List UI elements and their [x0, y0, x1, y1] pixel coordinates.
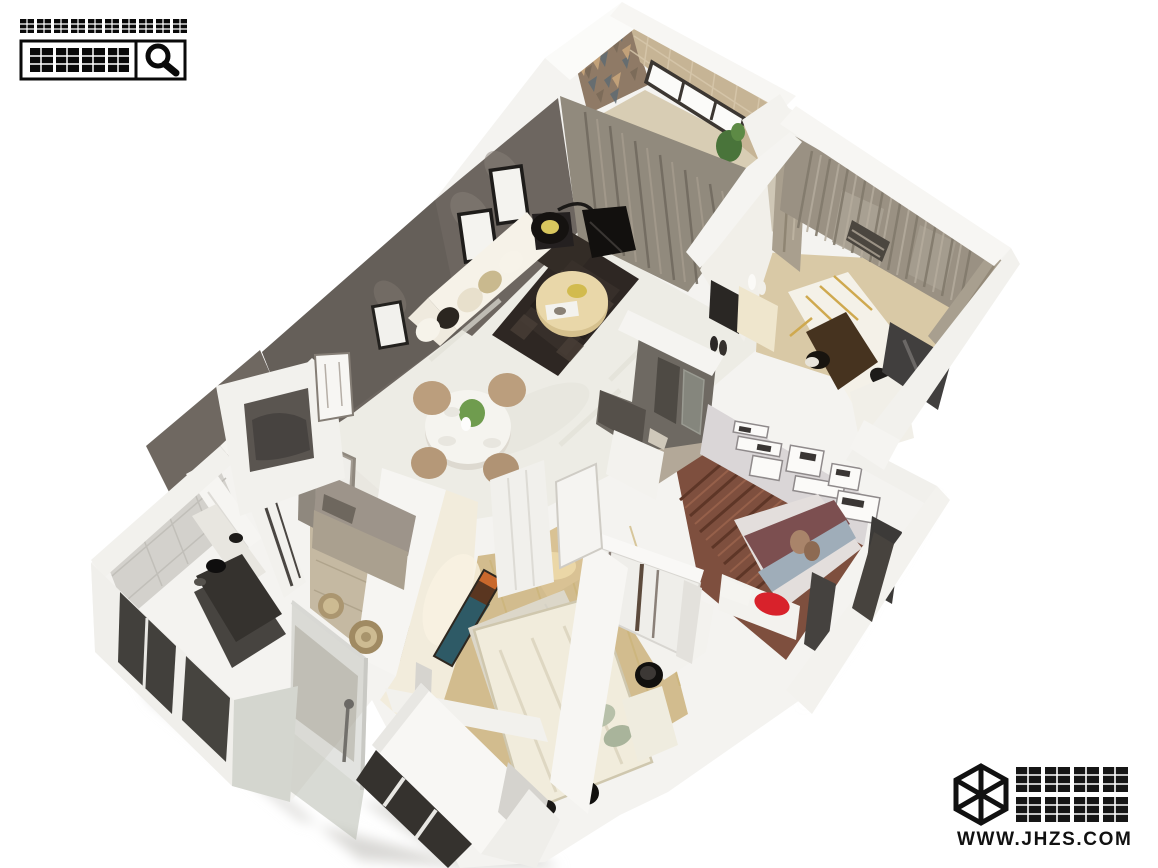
svg-text:WWW.JHZS.COM: WWW.JHZS.COM	[957, 829, 1132, 850]
